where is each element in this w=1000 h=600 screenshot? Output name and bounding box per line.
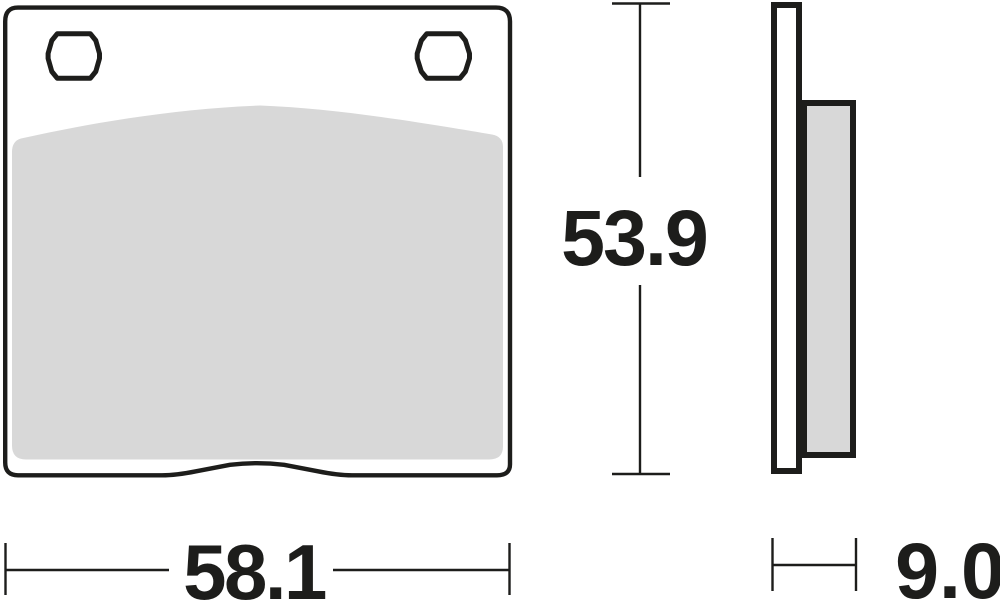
svg-text:58.1: 58.1 [183,528,326,600]
svg-text:53.9: 53.9 [561,193,707,282]
svg-text:9.0: 9.0 [895,526,1000,600]
